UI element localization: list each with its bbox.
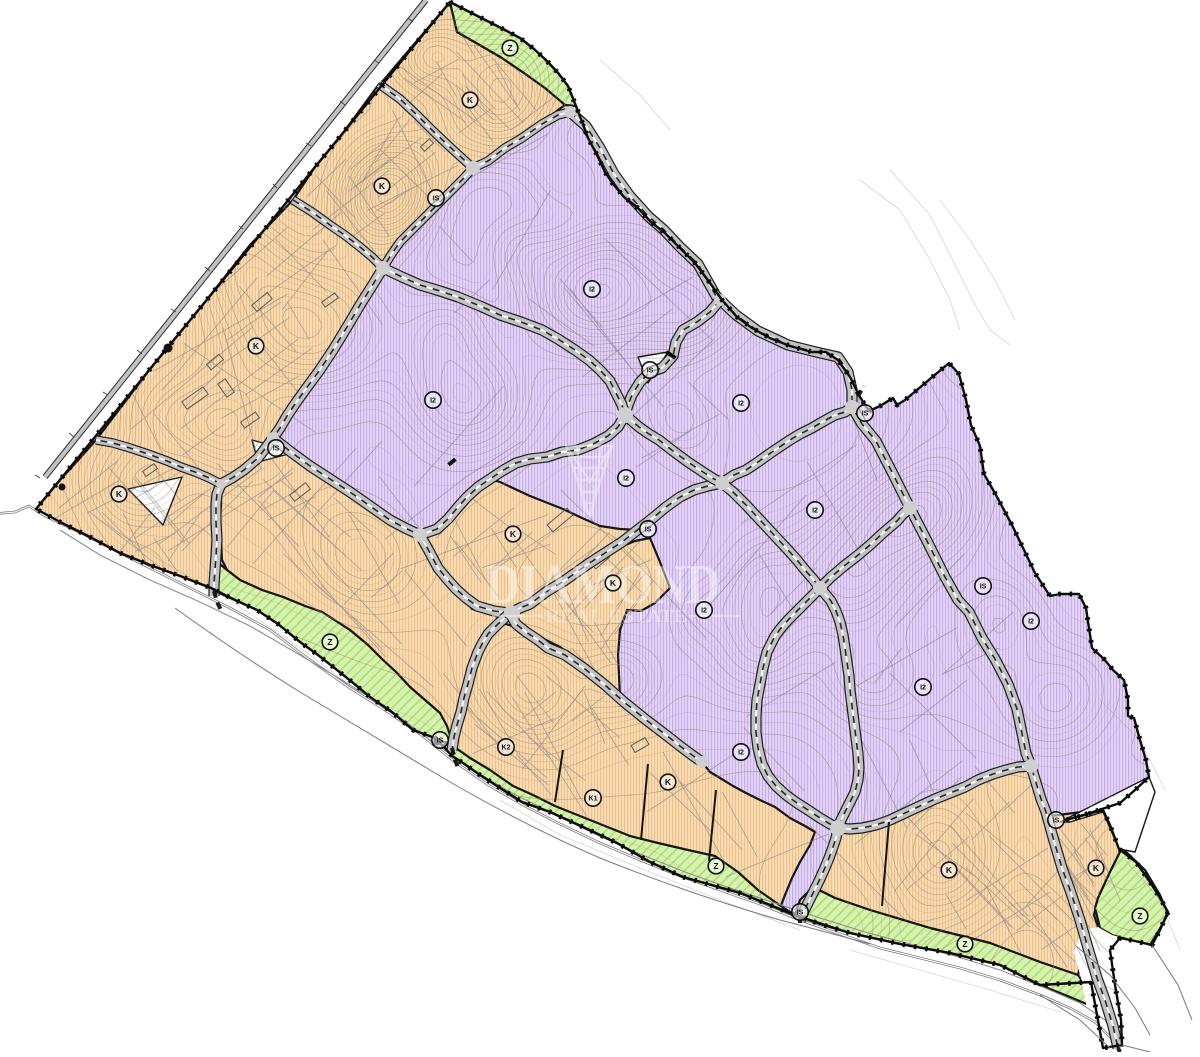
- svg-text:REAL ESTATE: REAL ESTATE: [545, 606, 687, 626]
- svg-text:IS: IS: [437, 738, 444, 745]
- svg-text:K: K: [379, 181, 386, 191]
- svg-text:I2: I2: [589, 287, 595, 294]
- svg-text:I2: I2: [812, 508, 818, 515]
- svg-text:I2: I2: [920, 685, 926, 692]
- svg-text:K1: K1: [589, 796, 598, 803]
- svg-text:Z: Z: [713, 861, 718, 871]
- svg-text:I2: I2: [1028, 619, 1034, 626]
- svg-text:IS: IS: [273, 446, 280, 453]
- svg-text:I2: I2: [701, 608, 707, 615]
- svg-text:I2: I2: [738, 401, 744, 408]
- svg-text:IS: IS: [980, 584, 987, 591]
- svg-text:Z: Z: [962, 939, 967, 949]
- svg-text:K: K: [665, 777, 672, 787]
- svg-text:Z: Z: [507, 43, 512, 53]
- svg-text:Z: Z: [327, 637, 332, 647]
- svg-text:K: K: [1093, 863, 1100, 873]
- svg-text:IS: IS: [1053, 818, 1060, 825]
- svg-text:Z: Z: [1137, 911, 1142, 921]
- svg-text:K: K: [510, 529, 517, 539]
- svg-text:I2: I2: [430, 398, 436, 405]
- svg-text:IS: IS: [797, 910, 804, 917]
- svg-text:K: K: [253, 341, 260, 351]
- svg-text:I2: I2: [738, 750, 744, 757]
- svg-text:K2: K2: [502, 745, 511, 752]
- svg-text:IS: IS: [433, 196, 440, 203]
- svg-text:IS: IS: [647, 368, 654, 375]
- svg-text:K: K: [946, 865, 953, 875]
- svg-text:I2: I2: [623, 476, 629, 483]
- svg-text:IS: IS: [862, 411, 869, 418]
- svg-text:K: K: [116, 489, 123, 499]
- svg-text:K: K: [467, 95, 474, 105]
- svg-text:IS: IS: [645, 527, 652, 534]
- svg-text:K: K: [610, 578, 617, 588]
